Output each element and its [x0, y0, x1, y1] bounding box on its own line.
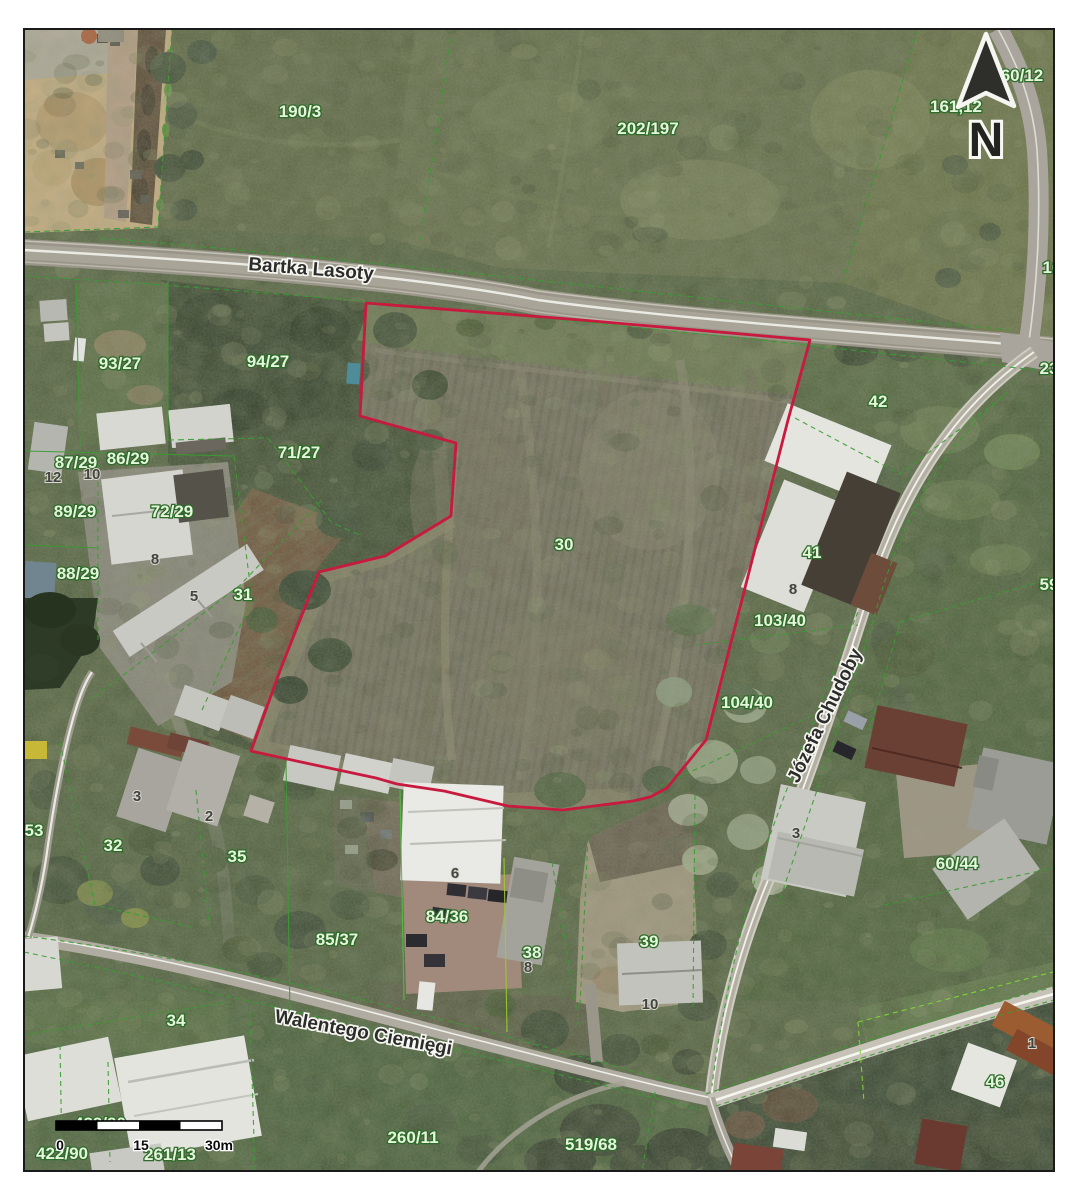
svg-text:2: 2: [205, 808, 213, 825]
svg-text:190/3: 190/3: [279, 102, 322, 121]
svg-text:31: 31: [234, 585, 253, 604]
svg-text:84/36: 84/36: [426, 907, 469, 926]
svg-text:103/40: 103/40: [754, 611, 806, 630]
svg-text:10: 10: [642, 996, 659, 1013]
svg-text:46: 46: [986, 1072, 1005, 1091]
svg-text:71/27: 71/27: [278, 443, 321, 462]
svg-text:1: 1: [1028, 1035, 1036, 1052]
svg-text:8: 8: [151, 551, 159, 568]
svg-text:34: 34: [167, 1011, 186, 1030]
svg-text:10: 10: [84, 466, 101, 483]
svg-text:86/29: 86/29: [107, 449, 150, 468]
svg-text:39: 39: [640, 932, 659, 951]
svg-text:3: 3: [792, 825, 800, 842]
svg-text:12: 12: [45, 469, 62, 486]
svg-text:30: 30: [555, 535, 574, 554]
svg-text:260/11: 260/11: [387, 1128, 438, 1147]
svg-text:N: N: [969, 114, 1004, 167]
svg-text:35: 35: [228, 847, 247, 866]
svg-text:72/29: 72/29: [151, 502, 194, 521]
svg-text:41: 41: [803, 543, 822, 562]
svg-text:30m: 30m: [205, 1137, 233, 1153]
svg-text:519/68: 519/68: [565, 1135, 617, 1154]
svg-text:202/197: 202/197: [617, 119, 678, 138]
svg-text:0: 0: [56, 1137, 64, 1153]
svg-text:8: 8: [789, 581, 797, 598]
svg-text:89/29: 89/29: [54, 502, 97, 521]
svg-text:85/37: 85/37: [316, 930, 359, 949]
svg-text:261/13: 261/13: [144, 1145, 196, 1164]
svg-text:60/44: 60/44: [936, 854, 979, 873]
svg-text:42: 42: [869, 392, 888, 411]
svg-text:32: 32: [104, 836, 123, 855]
svg-text:6: 6: [451, 865, 459, 882]
svg-text:3: 3: [133, 788, 141, 805]
svg-text:8: 8: [524, 959, 532, 976]
svg-text:5: 5: [190, 588, 198, 605]
svg-text:53: 53: [25, 821, 44, 840]
svg-text:88/29: 88/29: [57, 564, 100, 583]
svg-text:15: 15: [133, 1137, 149, 1153]
svg-text:94/27: 94/27: [247, 352, 290, 371]
svg-text:93/27: 93/27: [99, 354, 142, 373]
svg-text:104/40: 104/40: [721, 693, 773, 712]
